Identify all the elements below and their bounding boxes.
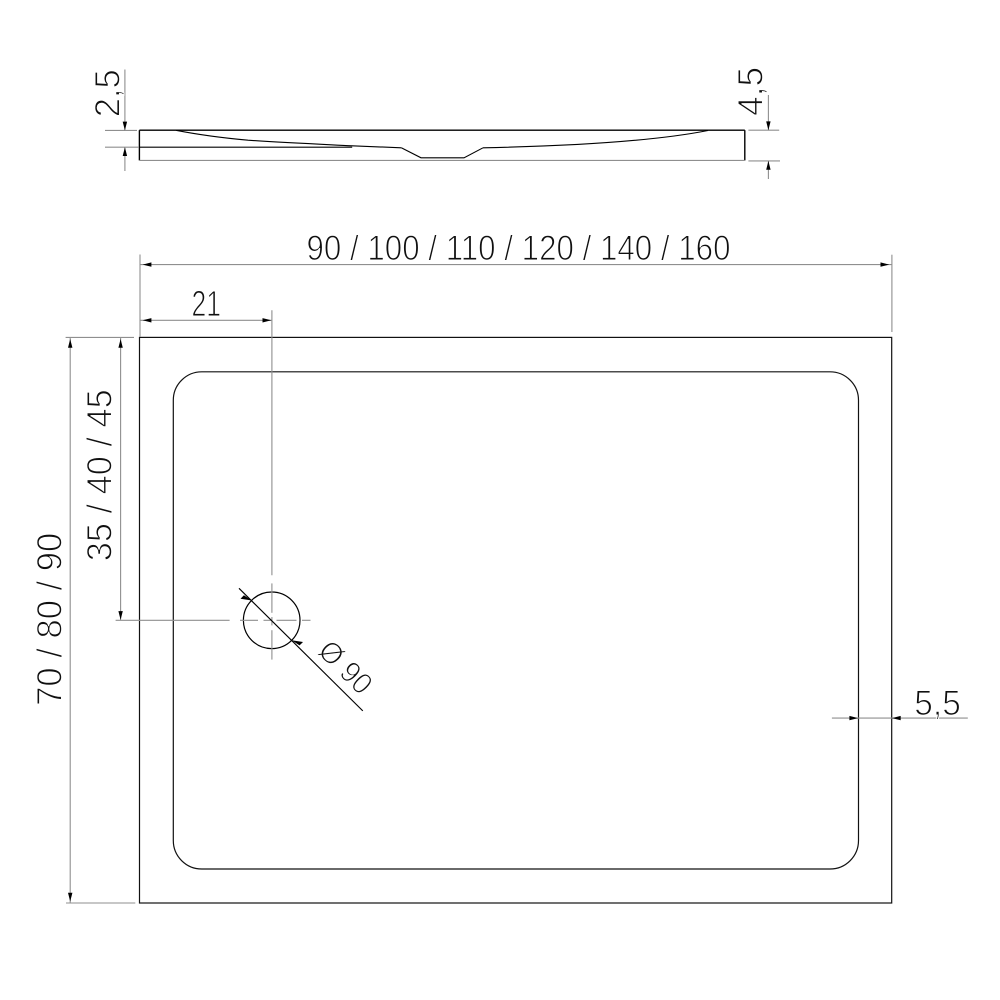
svg-text:90 / 100 / 110 / 120 / 140 / 1: 90 / 100 / 110 / 120 / 140 / 160 [307,229,731,268]
svg-text:5,5: 5,5 [914,684,961,723]
svg-text:35 / 40 / 45: 35 / 40 / 45 [80,389,119,561]
svg-text:2,5: 2,5 [88,69,127,117]
svg-text:4,5: 4,5 [731,67,770,116]
svg-text:70 / 80 / 90: 70 / 80 / 90 [31,533,70,706]
svg-text:21: 21 [192,283,222,324]
